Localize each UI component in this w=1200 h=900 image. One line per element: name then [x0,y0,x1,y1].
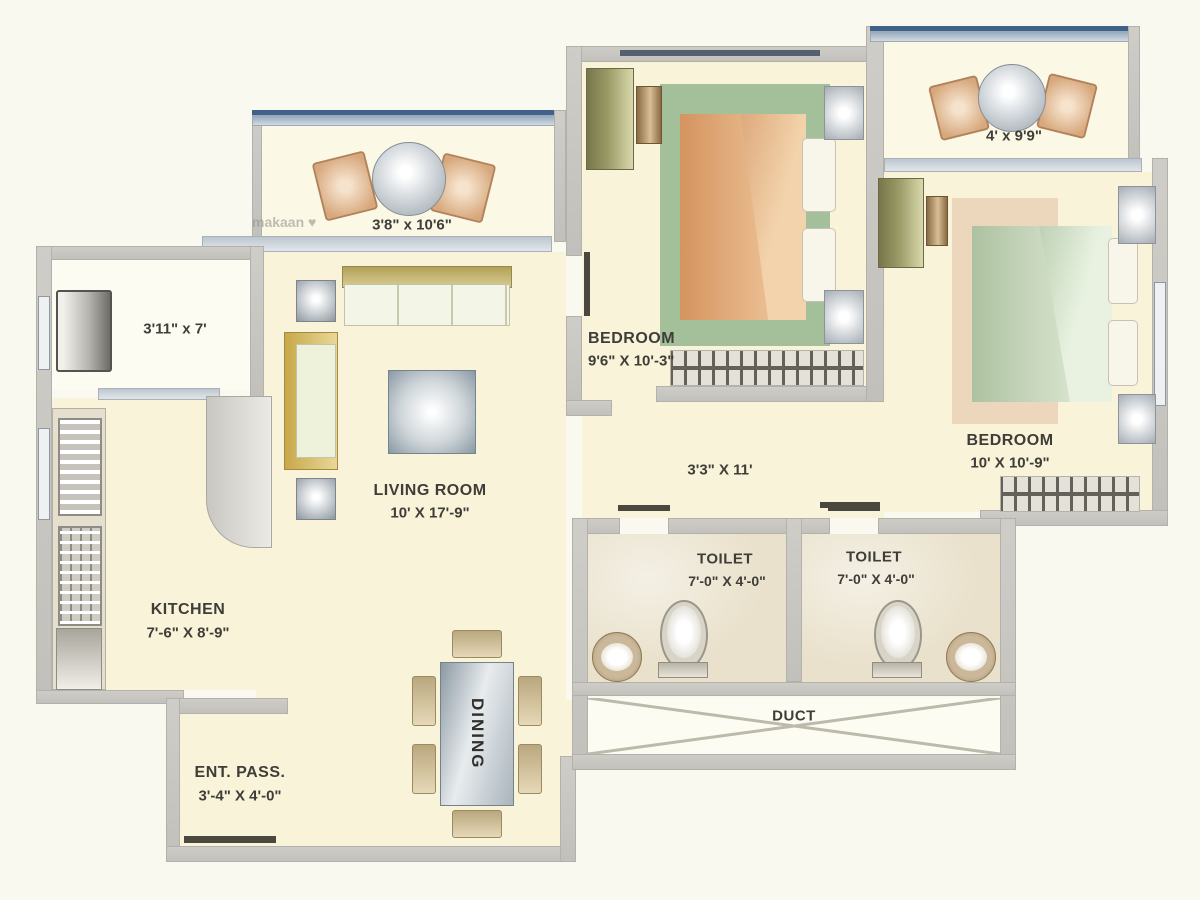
wall [668,518,830,534]
wall [572,518,588,770]
bedroom1-dresser [586,68,634,170]
bedroom1-bed [680,114,806,320]
bed-fold [972,226,1112,402]
bedroom1-window [620,50,820,56]
kitchen-window [38,428,50,520]
toilet2-wc [874,600,922,670]
bedroom2-side-table [926,196,948,246]
wall [566,46,582,256]
pillow [1108,238,1138,304]
sofa-two-seater-cushion [296,344,336,458]
kitchen-sink [58,418,102,516]
balcony-round-table [372,142,446,216]
floor-plan: DINING 3'8" x 10'6" 4' x 9'9" 3'11" x 7'… [0,0,1200,900]
sofa-three-seater [344,284,510,326]
toilet2-door [828,505,880,511]
passage-floor [582,400,884,518]
bedroom1-dim: 9'6" X 10'-3" [588,353,674,370]
washing-machine [56,290,112,372]
wall [1128,26,1140,172]
bedroom1-side-table [636,86,662,144]
toilet2-basin [946,632,996,682]
nightstand [824,86,864,140]
balcony-tl-dim: 3'8" x 10'6" [372,217,452,234]
toilet1-basin [592,632,642,682]
wall [566,400,612,416]
wall [560,756,576,862]
wall [1000,518,1016,770]
duct-label: DUCT [772,708,816,725]
pillow [802,138,836,212]
utility-dim: 3'11" x 7' [143,321,206,338]
wall [572,682,1016,696]
toilet2-label: TOILET [846,549,902,566]
center-table [388,370,476,454]
side-table [296,280,336,322]
dining-chair [452,630,502,658]
dining-chair [518,676,542,726]
utility-window [38,296,50,370]
toilet1-label: TOILET [697,551,753,568]
living-room-dim: 10' X 17'-9" [390,505,469,522]
kitchen-label: KITCHEN [151,601,226,619]
kitchen-platform [206,396,272,548]
wall [250,246,264,398]
wall [878,518,1016,534]
balcony-round-table [978,64,1046,132]
toilet1-wc [660,600,708,670]
bedroom2-balcony-sill [884,158,1142,172]
bedroom1-wardrobe [670,350,864,386]
bedroom2-dresser [878,178,924,268]
kitchen-cabinet [56,628,102,690]
wall [572,754,1016,770]
dining-chair [518,744,542,794]
bedroom2-label: BEDROOM [966,432,1053,450]
dining-table: DINING [440,662,514,806]
dining-chair [412,676,436,726]
bedroom1-door [584,252,590,316]
ent-pass-label: ENT. PASS. [195,764,286,782]
wall [786,518,802,682]
wall [36,690,184,704]
balcony-tl-window [252,110,564,126]
passage-dim: 3'3" X 11' [687,462,752,479]
nightstand [824,290,864,344]
balcony-tr-dim: 4' x 9'9" [986,128,1042,145]
watermark: makaan ♥ [252,214,316,230]
dining-chair [452,810,502,838]
toilet1-dim: 7'-0" X 4'-0" [688,573,766,589]
balcony-tr-window [870,26,1138,42]
wall [166,698,180,862]
bed-fold [680,114,806,320]
bedroom2-bed [972,226,1112,402]
bedroom2-dim: 10' X 10'-9" [970,455,1049,472]
wall [554,110,566,242]
side-table [296,478,336,520]
wall [656,386,868,402]
wall [36,246,262,260]
kitchen-stove [58,526,102,626]
pillow [1108,320,1138,386]
nightstand [1118,394,1156,444]
toilet2-tank [872,662,922,678]
wall [166,698,288,714]
entrance-door [184,836,276,843]
living-room-label: LIVING ROOM [373,482,486,500]
bedroom2-wardrobe [1000,476,1140,512]
wall [166,846,576,862]
toilet1-door [618,505,670,511]
kitchen-dim: 7'-6" X 8'-9" [146,625,229,642]
utility-kitchen-sill [98,388,220,400]
dining-chair [412,744,436,794]
duct-cross-icon [588,698,1000,754]
dining-label: DINING [467,698,487,770]
nightstand [1118,186,1156,244]
ent-pass-dim: 3'-4" X 4'-0" [198,788,281,805]
bedroom2-window [1154,282,1166,406]
toilet2-dim: 7'-0" X 4'-0" [837,571,915,587]
bedroom1-label: BEDROOM [588,330,675,348]
toilet1-tank [658,662,708,678]
